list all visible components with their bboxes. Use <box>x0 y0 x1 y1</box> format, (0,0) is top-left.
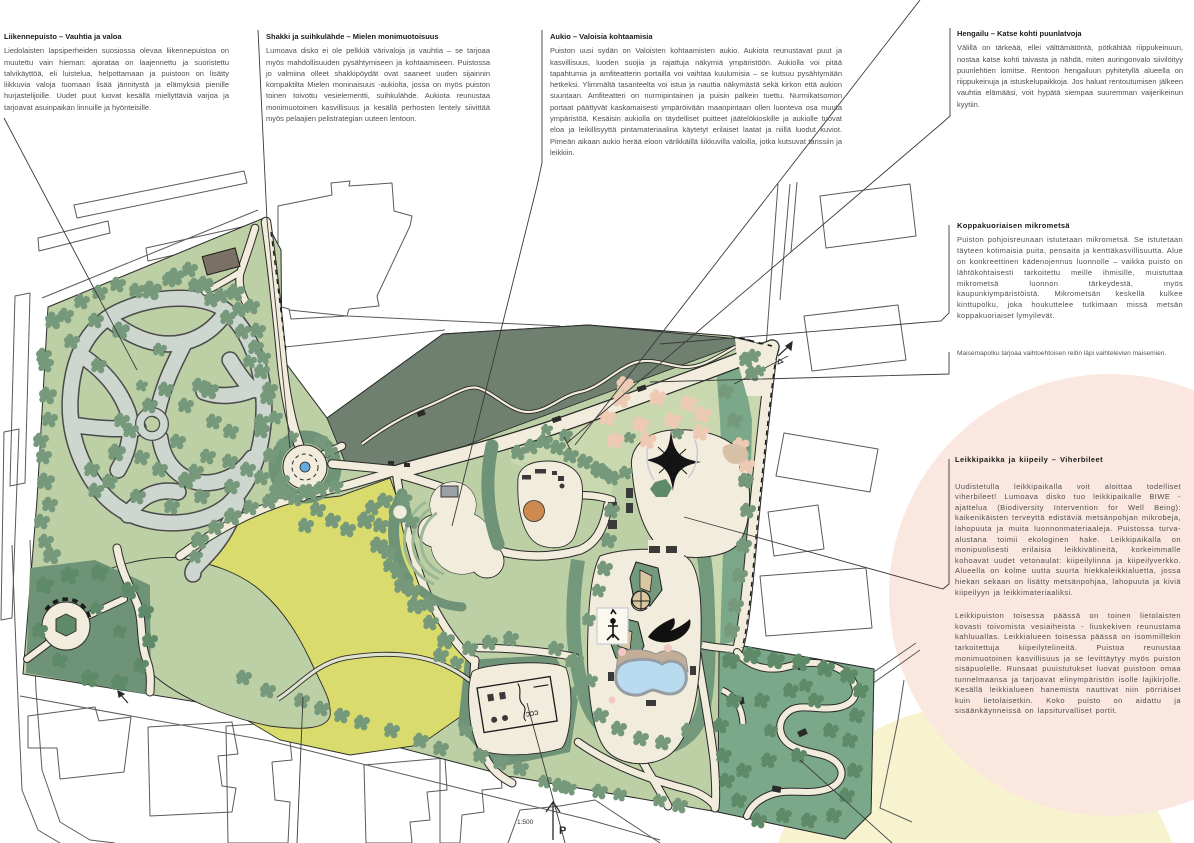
svg-text:P: P <box>559 825 566 837</box>
svg-text:ɔɔɔ: ɔɔɔ <box>525 707 539 719</box>
svg-text:1:500: 1:500 <box>517 819 534 826</box>
